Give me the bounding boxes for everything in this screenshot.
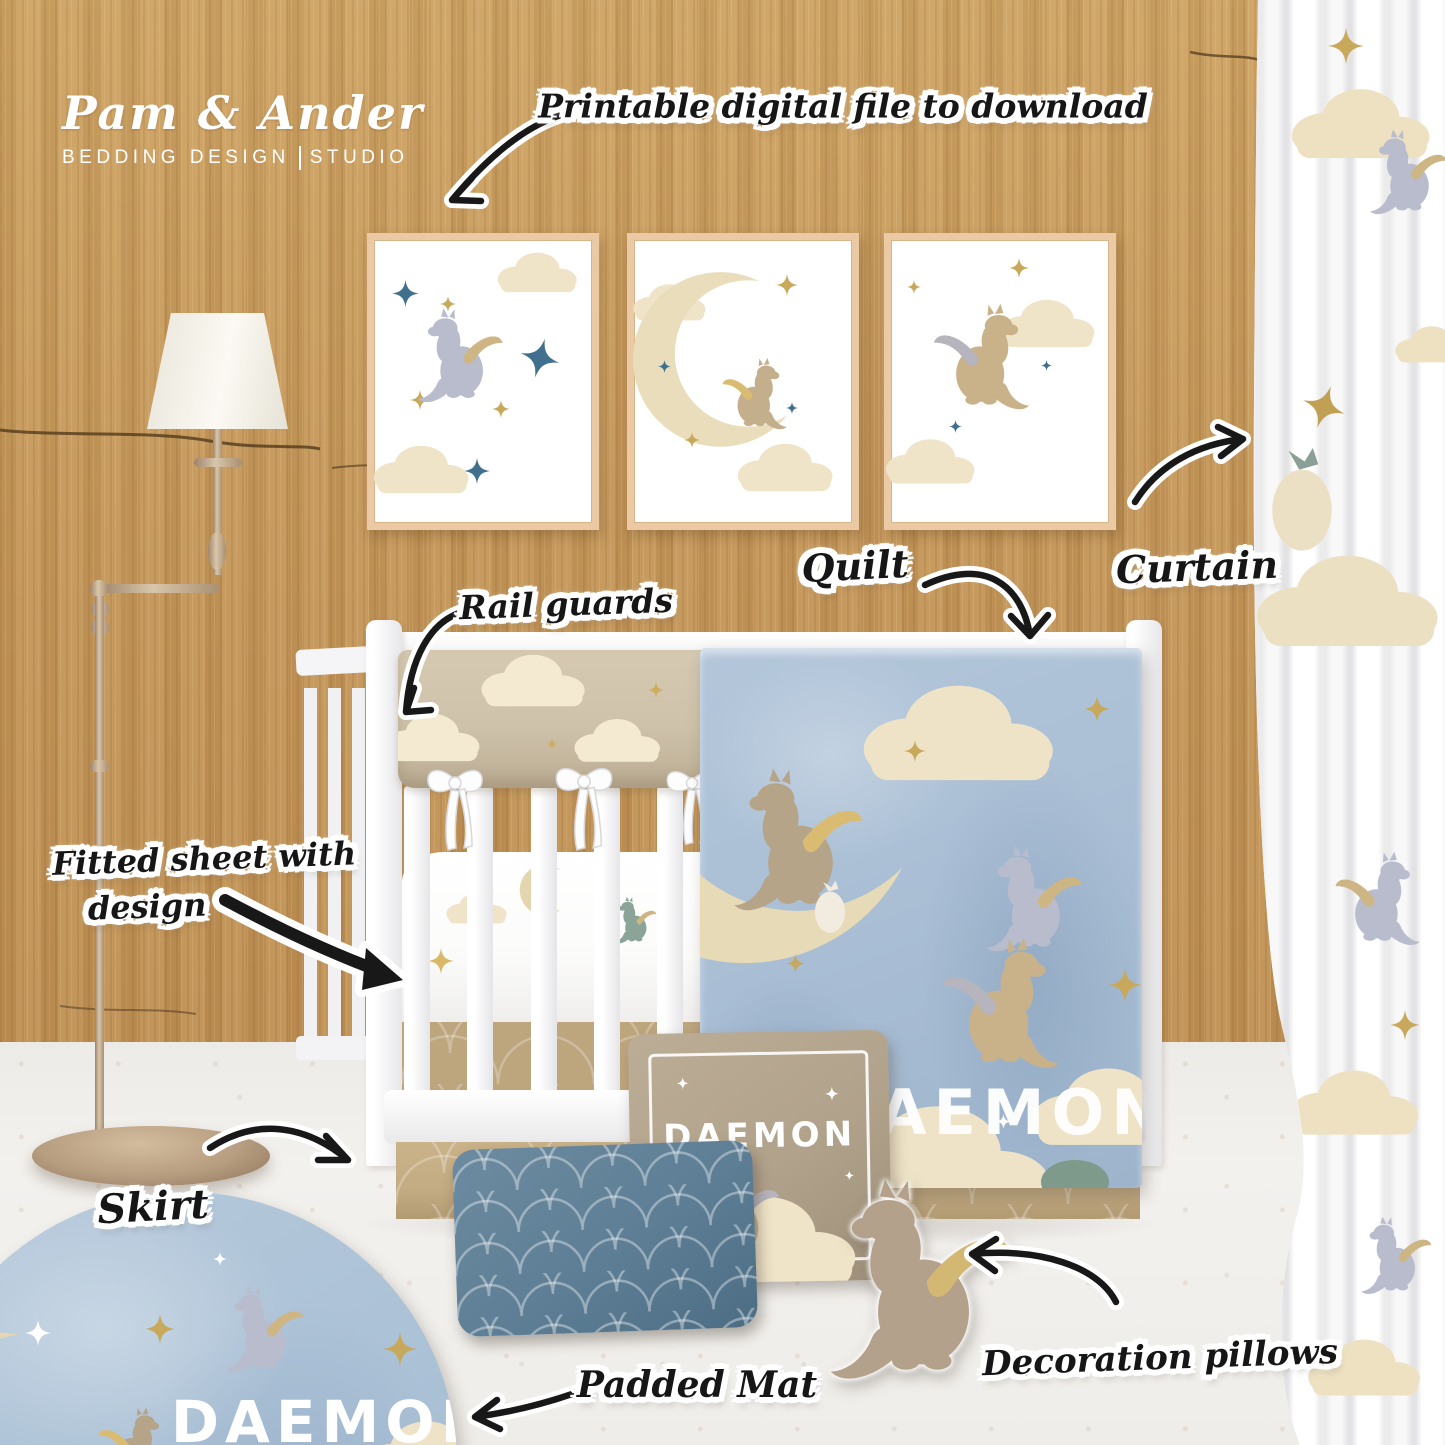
ribbon-bow-icon [548, 756, 620, 858]
cloud-icon [879, 432, 983, 490]
dragon-pillow [822, 1152, 1018, 1430]
brand-logo: Pam & Ander BEDDING DESIGN STUDIO [62, 86, 424, 170]
gold-star-icon [1302, 385, 1346, 429]
dragon-icon [936, 936, 1066, 1086]
wall-art-frame-1 [367, 233, 599, 530]
gold-star-icon [1084, 696, 1110, 722]
cloud-icon [1390, 320, 1445, 368]
wall-art-frame-2 [627, 233, 859, 530]
callout-fitted-sheet-label: Fitted sheet with design [51, 830, 358, 933]
ribbon-bow-icon [420, 758, 490, 858]
gold-star-icon [145, 1314, 175, 1344]
lamp-base [32, 1126, 270, 1186]
cloud-icon [366, 438, 478, 500]
white-star-icon [25, 1320, 51, 1346]
cloud-icon [730, 436, 842, 498]
gold-star-icon [684, 432, 700, 448]
mat-name: DAEMON [168, 1388, 457, 1445]
lamp-swing-arm [98, 584, 220, 593]
dragon-egg-icon [808, 880, 852, 936]
cloud-icon [850, 670, 1070, 794]
gold-star-icon [786, 954, 805, 973]
callout-rail-guards-label: Rail guards [459, 581, 674, 627]
blue-star-icon [949, 420, 962, 433]
gold-star-icon [776, 274, 798, 296]
scale-pillow [452, 1140, 758, 1337]
dragon-icon [1366, 128, 1445, 226]
dragon-icon [1332, 850, 1424, 958]
blue-star-icon [786, 402, 798, 414]
crib-left-post [366, 620, 402, 1166]
gold-star-icon [1009, 258, 1029, 278]
callout-padded-mat-label: Padded Mat [577, 1364, 817, 1406]
gold-star-icon [648, 682, 664, 698]
dragon-icon [1358, 1215, 1434, 1305]
blue-star-icon [1041, 360, 1052, 371]
brand-tagline-right: STUDIO [310, 147, 409, 169]
blue-star-icon [392, 280, 419, 307]
dragon-icon [929, 302, 1035, 424]
blue-star-icon [658, 360, 671, 373]
gold-star-icon [904, 740, 926, 762]
callout-printable-label: Printable digital file to download [538, 87, 1148, 126]
gold-star-icon [1108, 968, 1142, 1002]
blue-star-icon [520, 338, 560, 378]
wall-art-frame-3 [884, 233, 1116, 530]
callout-quilt-label: Quilt [800, 541, 909, 592]
callout-curtain-label: Curtain [1115, 542, 1279, 593]
sleeping-dragon-icon [1032, 1154, 1118, 1188]
callout-skirt-label: Skirt [96, 1181, 210, 1234]
brand-tagline-left: BEDDING DESIGN [62, 147, 290, 169]
cloud-icon [492, 246, 584, 298]
dragon-icon [95, 1406, 171, 1445]
gold-star-icon [1390, 1010, 1420, 1040]
white-star-icon [213, 1252, 227, 1266]
tagline-divider [299, 146, 301, 170]
white-star-icon [825, 1087, 839, 1101]
white-star-icon [677, 1077, 689, 1089]
brand-name: Pam & Ander [62, 86, 424, 140]
dragon-icon [720, 356, 790, 440]
lamp-shade [147, 313, 288, 429]
brand-tagline: BEDDING DESIGN STUDIO [62, 146, 424, 170]
gold-star-icon [907, 280, 921, 294]
dragon-icon [221, 1284, 307, 1384]
dragon-icon [414, 306, 506, 416]
gold-star-icon [1328, 28, 1364, 64]
cloud-icon [474, 650, 594, 714]
gold-star-icon [383, 1332, 417, 1366]
gold-star-icon [546, 738, 558, 750]
cloud-icon [1280, 1060, 1430, 1144]
nursery-mockup-scene: Pam & Ander BEDDING DESIGN STUDIO [0, 0, 1445, 1445]
